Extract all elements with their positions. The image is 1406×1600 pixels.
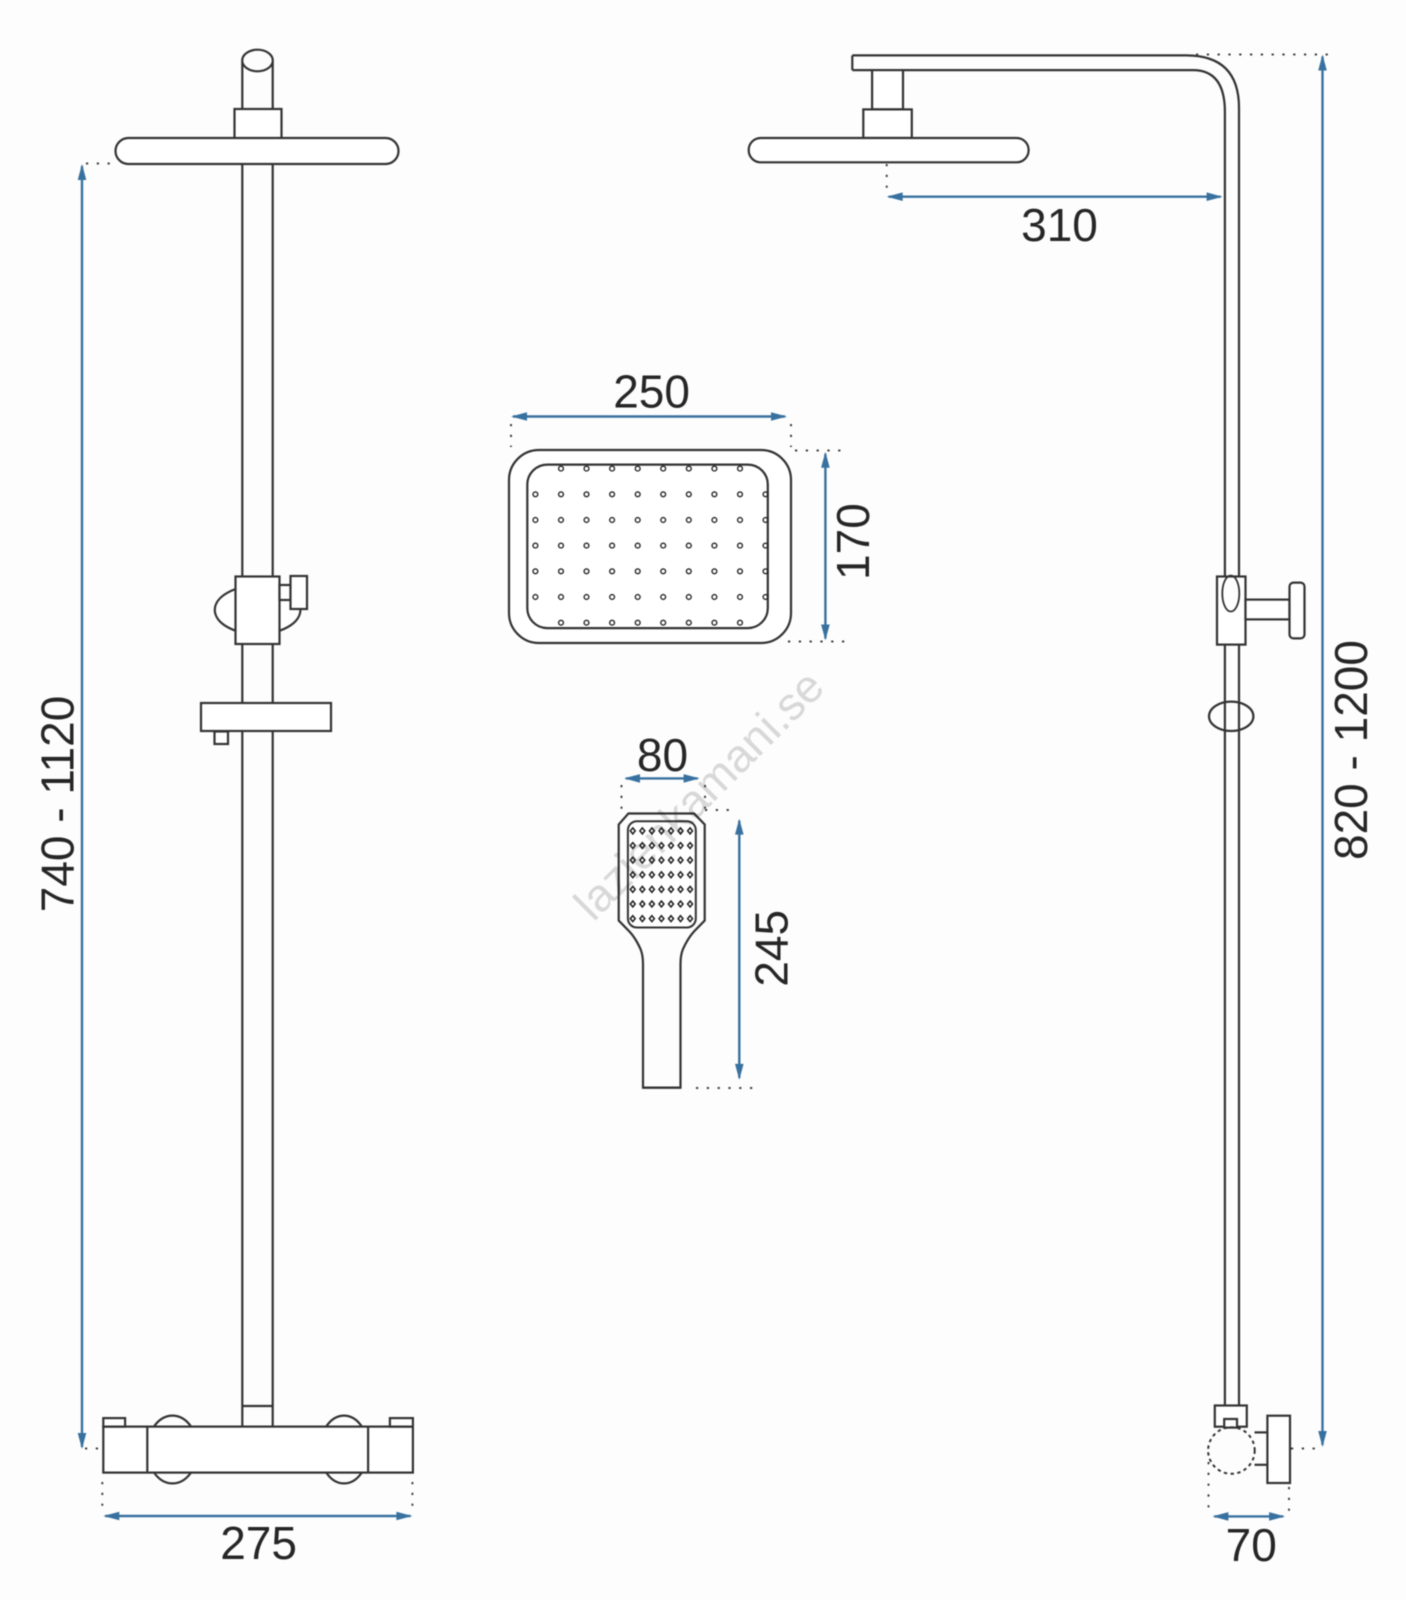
- svg-text:310: 310: [1021, 199, 1098, 251]
- svg-text:820 - 1200: 820 - 1200: [1325, 640, 1377, 860]
- svg-text:170: 170: [827, 503, 879, 580]
- svg-text:245: 245: [746, 910, 798, 987]
- svg-text:275: 275: [220, 1517, 297, 1569]
- svg-text:70: 70: [1226, 1519, 1277, 1571]
- svg-text:250: 250: [613, 366, 690, 418]
- svg-text:80: 80: [637, 729, 688, 781]
- svg-text:740 - 1120: 740 - 1120: [32, 696, 84, 913]
